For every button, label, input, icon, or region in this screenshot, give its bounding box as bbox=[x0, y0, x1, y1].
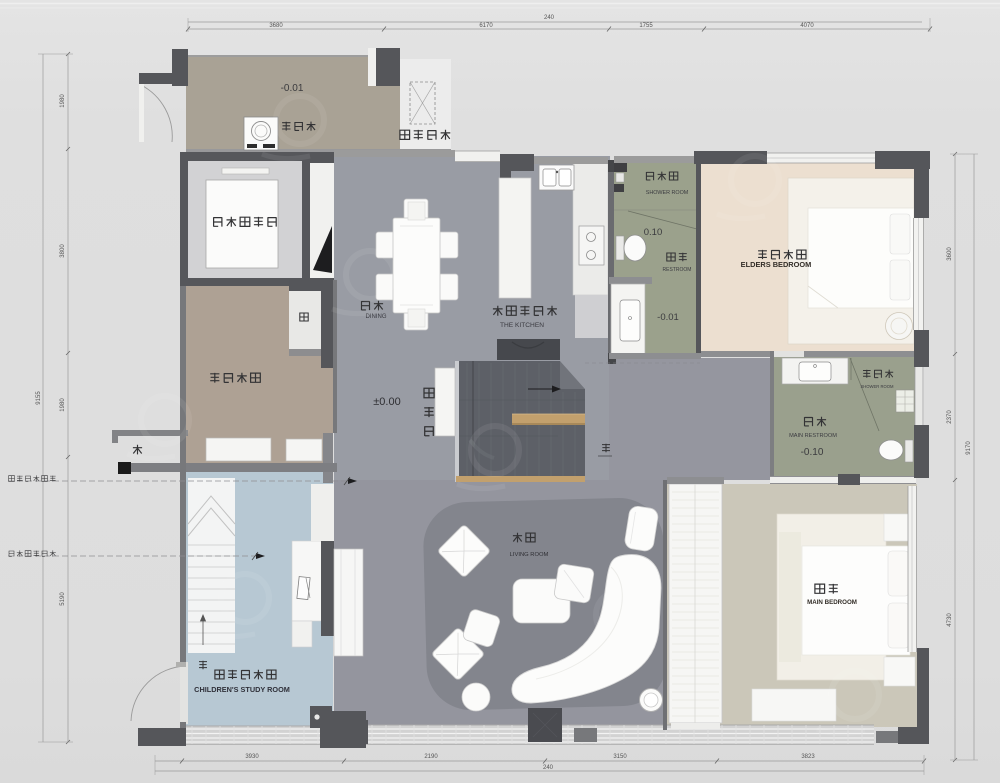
svg-text:MAIN RESTROOM: MAIN RESTROOM bbox=[789, 433, 837, 439]
svg-text:2190: 2190 bbox=[424, 754, 438, 760]
svg-text:3680: 3680 bbox=[269, 23, 283, 29]
svg-text:MAIN BEDROOM: MAIN BEDROOM bbox=[807, 599, 857, 606]
svg-text:1980: 1980 bbox=[60, 94, 66, 108]
svg-text:4070: 4070 bbox=[800, 23, 814, 29]
svg-text:9155: 9155 bbox=[36, 391, 42, 405]
svg-text:3150: 3150 bbox=[613, 754, 627, 760]
svg-text:-0.10: -0.10 bbox=[801, 447, 824, 458]
svg-text:3930: 3930 bbox=[245, 754, 259, 760]
svg-text:ELDERS BEDROOM: ELDERS BEDROOM bbox=[741, 260, 812, 269]
svg-text:4730: 4730 bbox=[947, 613, 953, 627]
svg-text:3800: 3800 bbox=[60, 244, 66, 258]
svg-text:240: 240 bbox=[543, 765, 554, 771]
svg-text:RESTROOM: RESTROOM bbox=[663, 267, 692, 273]
svg-text:0.10: 0.10 bbox=[644, 227, 663, 238]
svg-text:SHOWER ROOM: SHOWER ROOM bbox=[860, 384, 894, 389]
svg-text:THE KITCHEN: THE KITCHEN bbox=[500, 322, 544, 329]
svg-text:5190: 5190 bbox=[60, 592, 66, 606]
svg-text:240: 240 bbox=[544, 15, 555, 21]
svg-text:±0.00: ±0.00 bbox=[373, 396, 400, 408]
svg-text:CHILDREN'S STUDY ROOM: CHILDREN'S STUDY ROOM bbox=[194, 685, 290, 694]
svg-text:LIVING ROOM: LIVING ROOM bbox=[510, 552, 549, 558]
svg-text:1980: 1980 bbox=[60, 398, 66, 412]
svg-text:3600: 3600 bbox=[947, 247, 953, 261]
svg-text:2370: 2370 bbox=[947, 410, 953, 424]
svg-text:3823: 3823 bbox=[801, 754, 815, 760]
svg-text:1755: 1755 bbox=[639, 23, 653, 29]
svg-text:-0.01: -0.01 bbox=[281, 83, 304, 94]
svg-text:-0.01: -0.01 bbox=[657, 312, 679, 323]
svg-text:SHOWER ROOM: SHOWER ROOM bbox=[646, 190, 689, 196]
svg-text:6170: 6170 bbox=[479, 23, 493, 29]
svg-text:9170: 9170 bbox=[966, 441, 972, 455]
